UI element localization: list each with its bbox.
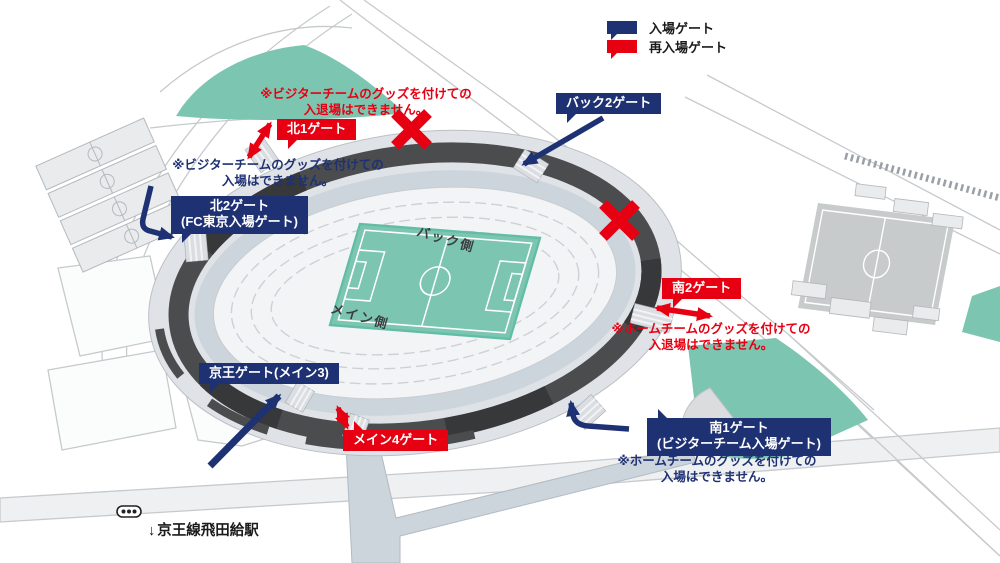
reentry-gate-legend-label: 再入場ゲート	[649, 37, 727, 56]
warning-line: 入退場はできません。	[606, 337, 816, 353]
gate-label-north2: 北2ゲート (FC東京入場ゲート)	[171, 196, 308, 234]
gate-label-north1: 北1ゲート	[277, 119, 356, 140]
sports-courts	[36, 118, 191, 272]
reentry-gate-swatch-icon	[607, 40, 637, 53]
station-arrow-icon: ↓	[148, 523, 155, 539]
map-canvas	[0, 0, 1000, 563]
gate-label-south1-sub: (ビジターチーム入場ゲート)	[657, 436, 821, 452]
warning-line: ※ホームチームのグッズを付けての	[606, 321, 816, 337]
practice-pitch	[798, 203, 955, 325]
warning-visitor-goods-reentry: ※ビジターチームのグッズを付けての 入退場はできません。	[250, 86, 482, 119]
gate-label-south1-main: 南1ゲート	[657, 420, 821, 436]
legend-reentry-row: 再入場ゲート	[607, 37, 727, 56]
warning-line: 入場はできません。	[612, 469, 822, 485]
warning-line: 入場はできません。	[162, 173, 394, 189]
warning-line: ※ビジターチームのグッズを付けての	[250, 86, 482, 102]
gate-label-north2-main: 北2ゲート	[181, 198, 298, 214]
station-label: ↓京王線飛田給駅	[148, 519, 259, 540]
station-name: 京王線飛田給駅	[157, 523, 259, 539]
entry-gate-legend-label: 入場ゲート	[649, 18, 714, 37]
gate-label-keio: 京王ゲート(メイン3)	[199, 363, 339, 384]
gate-label-south2: 南2ゲート	[662, 278, 741, 299]
warning-visitor-goods-entry: ※ビジターチームのグッズを付けての 入場はできません。	[162, 157, 394, 190]
green-area-east	[962, 286, 1000, 342]
stadium-access-map: 入場ゲート 再入場ゲート 北1ゲート バック2ゲート 北2ゲート (FC東京入場…	[0, 0, 1000, 563]
entry-gate-swatch-icon	[607, 21, 637, 34]
warning-home-goods-reentry: ※ホームチームのグッズを付けての 入退場はできません。	[606, 321, 816, 354]
gate-label-north2-sub: (FC東京入場ゲート)	[181, 214, 298, 230]
gate-label-back2: バック2ゲート	[556, 93, 661, 114]
warning-home-goods-entry: ※ホームチームのグッズを付けての 入場はできません。	[612, 453, 822, 486]
warning-line: 入退場はできません。	[250, 102, 482, 118]
gate-label-south1: 南1ゲート (ビジターチーム入場ゲート)	[647, 418, 831, 456]
legend-entry-row: 入場ゲート	[607, 18, 727, 37]
warning-line: ※ビジターチームのグッズを付けての	[162, 157, 394, 173]
gate-label-main4: メイン4ゲート	[343, 430, 448, 451]
legend: 入場ゲート 再入場ゲート	[607, 18, 727, 56]
